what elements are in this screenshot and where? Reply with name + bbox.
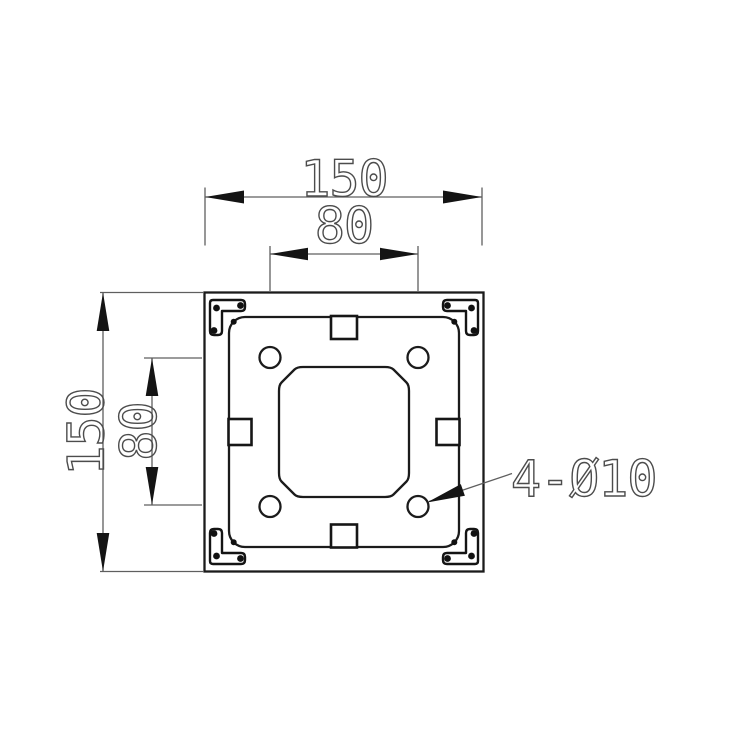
weld-dot xyxy=(213,305,220,312)
arrowhead-top xyxy=(146,358,159,396)
plate-body xyxy=(205,293,484,572)
arrowhead-right xyxy=(443,191,482,204)
dimension-hole-spacing-horizontal: 80 xyxy=(270,197,418,291)
flange-corner-weld-dot xyxy=(231,539,237,545)
weld-dot xyxy=(237,302,244,309)
weld-dot xyxy=(444,302,451,309)
weld-dot xyxy=(213,553,220,560)
pole-tube-profile xyxy=(279,367,409,497)
arrowhead-bottom xyxy=(146,467,159,505)
bolt-hole-bottom-left xyxy=(260,496,281,517)
flange-corner-weld-dot xyxy=(451,539,457,545)
tab-right xyxy=(437,419,460,445)
arrowhead-right xyxy=(380,248,418,260)
weld-dot xyxy=(468,305,475,312)
arrowhead-bottom xyxy=(97,533,110,572)
tab-top xyxy=(331,316,357,339)
dim-hole-spacing-horizontal-label: 80 xyxy=(315,197,373,255)
weld-dot xyxy=(471,327,478,334)
callout-holes: 4-Ø10 xyxy=(427,450,657,508)
tab-bottom xyxy=(331,525,357,548)
weld-dot xyxy=(237,555,244,562)
flange-corner-weld-dot xyxy=(451,319,457,325)
bolt-hole-bottom-right xyxy=(408,496,429,517)
bolt-hole-top-right xyxy=(408,347,429,368)
arrowhead-left xyxy=(205,191,244,204)
arrowhead-left xyxy=(270,248,308,260)
cad-drawing-canvas: 150 80 150 80 xyxy=(0,0,730,730)
weld-dot xyxy=(468,553,475,560)
dimension-hole-spacing-vertical: 80 xyxy=(110,358,202,505)
dim-plate-height-label: 150 xyxy=(58,388,116,475)
weld-dot xyxy=(211,327,218,334)
flange-corner-weld-dot xyxy=(231,319,237,325)
weld-dot xyxy=(444,555,451,562)
dim-hole-spacing-vertical-label: 80 xyxy=(110,402,168,460)
arrowhead-top xyxy=(97,293,110,332)
weld-dot xyxy=(211,530,218,537)
tab-left xyxy=(229,419,252,445)
bolt-hole-top-left xyxy=(260,347,281,368)
weld-dot xyxy=(471,530,478,537)
hole-callout-label: 4-Ø10 xyxy=(511,450,657,508)
base-plate-technical-drawing: 150 80 150 80 xyxy=(0,0,730,730)
